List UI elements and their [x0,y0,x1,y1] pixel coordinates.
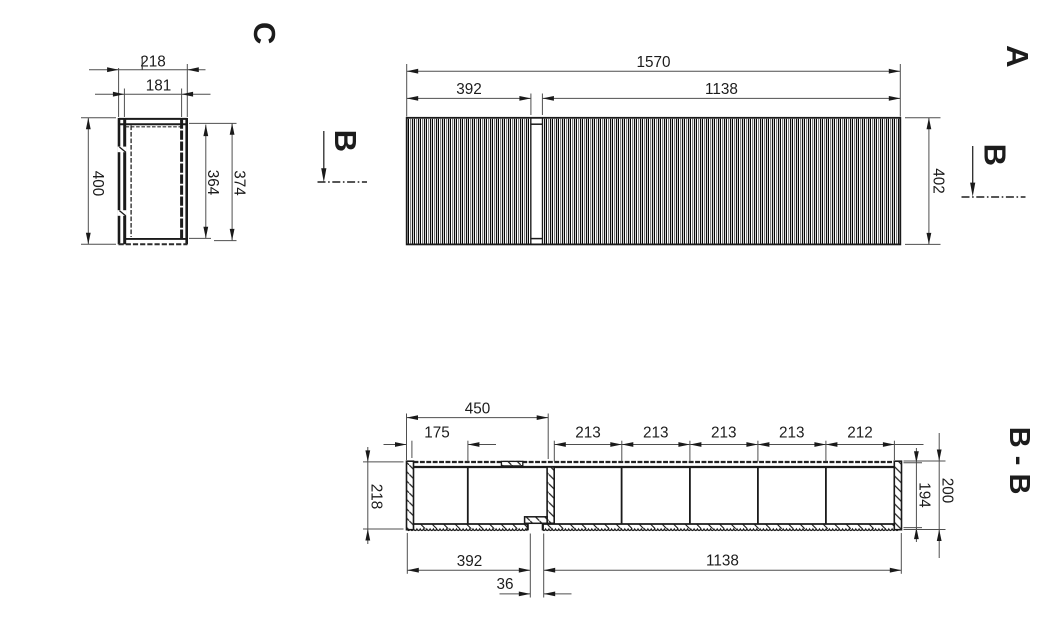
svg-text:B: B [328,130,363,152]
svg-text:175: 175 [424,425,450,442]
svg-text:213: 213 [643,425,669,442]
svg-text:364: 364 [204,170,221,196]
svg-text:212: 212 [847,425,873,442]
svg-text:402: 402 [929,168,946,194]
svg-text:213: 213 [779,425,805,442]
svg-text:36: 36 [496,576,513,593]
svg-text:B: B [977,144,1012,166]
svg-text:374: 374 [231,170,248,196]
svg-text:181: 181 [146,78,172,95]
svg-text:218: 218 [140,54,166,71]
svg-text:1138: 1138 [705,81,738,98]
svg-text:392: 392 [457,553,483,570]
svg-text:450: 450 [465,401,491,418]
svg-text:C: C [247,22,282,44]
svg-text:B - B: B - B [1003,427,1035,495]
svg-text:400: 400 [89,171,106,197]
svg-text:218: 218 [367,484,384,510]
svg-text:200: 200 [938,478,955,504]
svg-text:213: 213 [575,425,601,442]
svg-text:392: 392 [456,81,482,98]
svg-text:1138: 1138 [706,553,739,570]
svg-text:A: A [1000,45,1035,67]
svg-text:1570: 1570 [636,54,670,71]
svg-text:213: 213 [711,425,737,442]
svg-text:194: 194 [915,482,932,508]
